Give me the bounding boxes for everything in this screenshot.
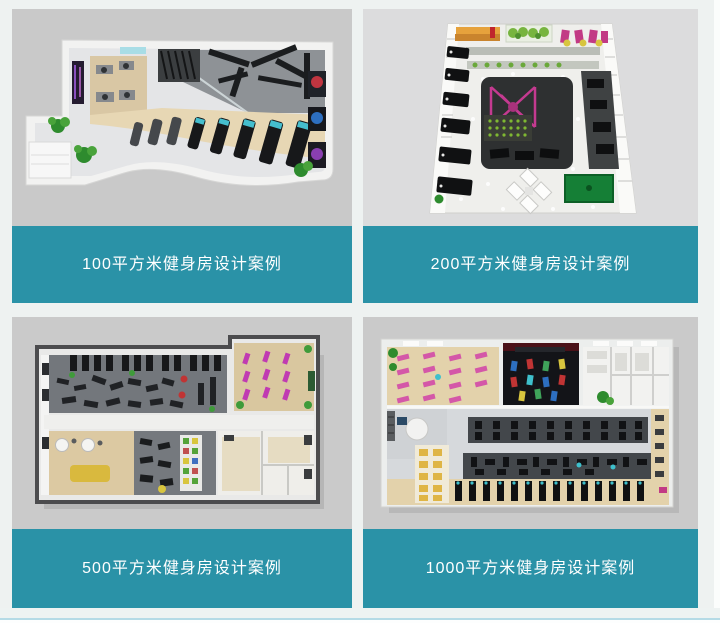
page-right-margin: [714, 0, 720, 612]
case-card-500sqm[interactable]: 500平方米健身房设计案例: [12, 317, 352, 608]
case-caption-1000sqm[interactable]: 1000平方米健身房设计案例: [363, 529, 698, 608]
case-caption-500sqm[interactable]: 500平方米健身房设计案例: [12, 529, 352, 608]
page-footer-area: [0, 608, 720, 623]
gym-floorplan-500sqm-render[interactable]: [12, 317, 352, 529]
case-card-1000sqm[interactable]: 1000平方米健身房设计案例: [363, 317, 698, 608]
case-caption-100sqm[interactable]: 100平方米健身房设计案例: [12, 226, 352, 303]
case-card-200sqm[interactable]: 200平方米健身房设计案例: [363, 9, 698, 303]
case-caption-200sqm[interactable]: 200平方米健身房设计案例: [363, 226, 698, 303]
case-card-100sqm[interactable]: 100平方米健身房设计案例: [12, 9, 352, 303]
gym-floorplan-200sqm-render[interactable]: [363, 9, 698, 226]
case-gallery-grid: 100平方米健身房设计案例: [12, 9, 698, 608]
gym-floorplan-100sqm-render[interactable]: [12, 9, 352, 226]
floorplan-500sqm-svg: [12, 317, 352, 529]
floorplan-200sqm-svg: [363, 9, 698, 226]
floorplan-100sqm-svg: [12, 9, 352, 226]
gym-floorplan-1000sqm-render[interactable]: [363, 317, 698, 529]
floorplan-1000sqm-svg: [363, 317, 698, 529]
